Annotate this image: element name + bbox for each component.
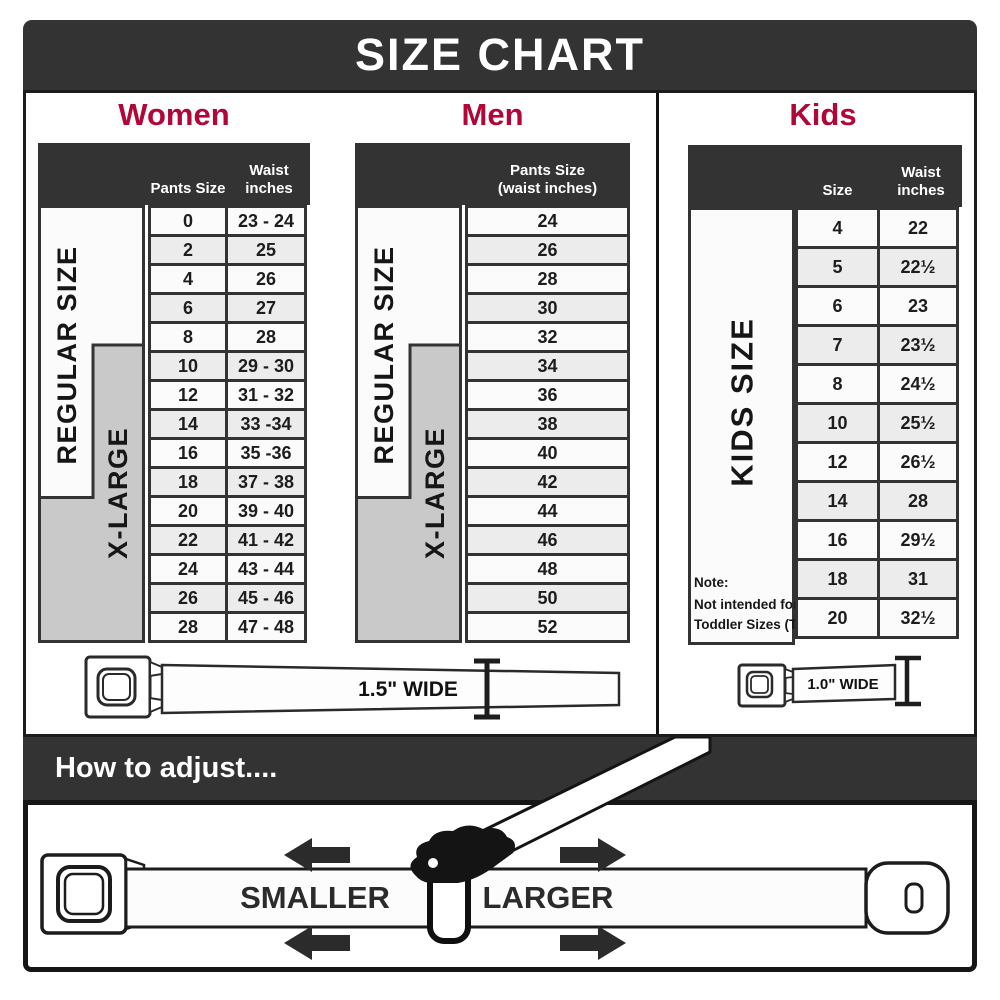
pants-size-cell: 44 [467, 497, 629, 526]
table-row: 20 39 - 40 [150, 497, 306, 526]
adult-belt-illustration: 1.5" WIDE [83, 650, 633, 725]
table-row: 24 43 - 44 [150, 555, 306, 584]
kids-table-header: Size Waist inches [688, 145, 962, 207]
arrow-left-icon [284, 838, 350, 872]
table-row: 4 26 [150, 265, 306, 294]
women-regular-size-label: REGULAR SIZE [52, 245, 82, 464]
seatbelt-buckle-icon [739, 665, 793, 706]
kids-fit-range-label: KIDS SIZE Note: Not intended for Toddler… [688, 207, 795, 645]
table-row: 18 31 [797, 560, 958, 599]
waist-cell: 45 - 46 [227, 584, 306, 613]
women-fit-range-labels: REGULAR SIZE X-LARGE [38, 205, 148, 643]
kid-size-cell: 14 [797, 482, 879, 521]
kid-size-cell: 16 [797, 521, 879, 560]
waist-cell: 25 [227, 236, 306, 265]
table-row: 18 37 - 38 [150, 468, 306, 497]
kids-size-label: KIDS SIZE [725, 317, 760, 487]
kids-size-table: Size Waist inches KIDS SIZE Note: Not in… [688, 145, 962, 645]
table-row: 10 29 - 30 [150, 352, 306, 381]
kid-size-cell: 8 [797, 365, 879, 404]
table-row: 16 29½ [797, 521, 958, 560]
men-col-pants-size: Pants Size (waist inches) [465, 162, 630, 205]
waist-cell: 31 - 32 [227, 381, 306, 410]
pants-size-cell: 26 [150, 584, 227, 613]
waist-cell: 26½ [879, 443, 958, 482]
waist-cell: 29½ [879, 521, 958, 560]
waist-cell: 26 [227, 265, 306, 294]
waist-cell: 35 -36 [227, 439, 306, 468]
table-row: 0 23 - 24 [150, 207, 306, 236]
kids-col-waist: Waist inches [880, 164, 962, 207]
size-tables-panel: Women Men Kids Pants Size Waist inches R… [23, 90, 977, 737]
adjust-illustration-panel: SMALLER LARGER [23, 800, 977, 972]
waist-cell: 32½ [879, 599, 958, 638]
waist-cell: 23 [879, 287, 958, 326]
pants-size-cell: 30 [467, 294, 629, 323]
pants-size-cell: 8 [150, 323, 227, 352]
waist-cell: 28 [879, 482, 958, 521]
kid-size-cell: 7 [797, 326, 879, 365]
waist-cell: 25½ [879, 404, 958, 443]
table-row: 28 47 - 48 [150, 613, 306, 642]
kid-size-cell: 12 [797, 443, 879, 482]
pants-size-cell: 28 [467, 265, 629, 294]
waist-cell: 27 [227, 294, 306, 323]
pants-size-cell: 36 [467, 381, 629, 410]
pants-size-cell: 48 [467, 555, 629, 584]
table-row: 52 [467, 613, 629, 642]
table-row: 46 [467, 526, 629, 555]
waist-cell: 23½ [879, 326, 958, 365]
seatbelt-buckle-icon [86, 657, 162, 717]
women-size-table: Pants Size Waist inches REGULAR SIZE X-L… [38, 143, 310, 643]
men-regular-size-label: REGULAR SIZE [369, 245, 399, 464]
pants-size-cell: 18 [150, 468, 227, 497]
pants-size-cell: 6 [150, 294, 227, 323]
pants-size-cell: 0 [150, 207, 227, 236]
women-xlarge-label: X-LARGE [103, 427, 133, 559]
women-table-header: Pants Size Waist inches [38, 143, 310, 205]
waist-cell: 47 - 48 [227, 613, 306, 642]
waist-cell: 28 [227, 323, 306, 352]
belt-adjuster-slider [430, 857, 468, 941]
kid-size-cell: 20 [797, 599, 879, 638]
waist-cell: 24½ [879, 365, 958, 404]
pants-size-cell: 22 [150, 526, 227, 555]
table-row: 6 23 [797, 287, 958, 326]
width-measure-icon [895, 658, 921, 704]
table-row: 14 33 -34 [150, 410, 306, 439]
table-row: 42 [467, 468, 629, 497]
table-row: 48 [467, 555, 629, 584]
section-divider [656, 93, 659, 734]
kid-size-cell: 18 [797, 560, 879, 599]
table-row: 36 [467, 381, 629, 410]
adult-belt-width-label: 1.5" WIDE [358, 678, 458, 701]
kids-note-line3: Toddler Sizes (T) [694, 617, 795, 632]
adjust-belt-illustration: SMALLER LARGER [28, 805, 972, 967]
women-col-waist: Waist inches [228, 162, 310, 205]
kid-size-cell: 5 [797, 248, 879, 287]
men-xlarge-label: X-LARGE [420, 427, 450, 559]
kids-col-size: Size [795, 182, 880, 207]
waist-cell: 33 -34 [227, 410, 306, 439]
waist-cell: 41 - 42 [227, 526, 306, 555]
pants-size-cell: 50 [467, 584, 629, 613]
table-row: 38 [467, 410, 629, 439]
waist-cell: 31 [879, 560, 958, 599]
kids-size-rows: 4 22 5 22½ 6 23 [795, 207, 959, 639]
kids-heading: Kids [673, 97, 973, 133]
table-row: 22 41 - 42 [150, 526, 306, 555]
pants-size-cell: 24 [467, 207, 629, 236]
adjust-heading: How to adjust.... [55, 737, 277, 800]
belt-tip [866, 863, 948, 933]
men-table-header: Pants Size (waist inches) [355, 143, 630, 205]
table-row: 34 [467, 352, 629, 381]
table-row: 14 28 [797, 482, 958, 521]
table-row: 6 27 [150, 294, 306, 323]
men-heading: Men [355, 97, 630, 133]
table-row: 16 35 -36 [150, 439, 306, 468]
pants-size-cell: 42 [467, 468, 629, 497]
kids-belt-width-label: 1.0" WIDE [807, 676, 878, 693]
pants-size-cell: 14 [150, 410, 227, 439]
pants-size-cell: 24 [150, 555, 227, 584]
waist-cell: 23 - 24 [227, 207, 306, 236]
women-heading: Women [38, 97, 310, 133]
table-row: 44 [467, 497, 629, 526]
arrow-right-icon [560, 926, 626, 960]
page-title: SIZE CHART [355, 29, 645, 81]
table-row: 8 28 [150, 323, 306, 352]
men-size-rows: 24 26 28 30 [465, 205, 630, 643]
kid-size-cell: 4 [797, 209, 879, 248]
table-row: 30 [467, 294, 629, 323]
table-row: 7 23½ [797, 326, 958, 365]
title-banner: SIZE CHART [23, 20, 977, 90]
table-row: 12 31 - 32 [150, 381, 306, 410]
waist-cell: 22½ [879, 248, 958, 287]
kid-size-cell: 6 [797, 287, 879, 326]
waist-cell: 39 - 40 [227, 497, 306, 526]
arrow-left-icon [284, 926, 350, 960]
smaller-label: SMALLER [240, 880, 390, 915]
men-size-table: Pants Size (waist inches) REGULAR SIZE X… [355, 143, 630, 643]
pants-size-cell: 26 [467, 236, 629, 265]
waist-cell: 22 [879, 209, 958, 248]
larger-label: LARGER [483, 880, 614, 915]
pants-size-cell: 4 [150, 265, 227, 294]
table-row: 20 32½ [797, 599, 958, 638]
table-row: 8 24½ [797, 365, 958, 404]
pants-size-cell: 38 [467, 410, 629, 439]
pants-size-cell: 52 [467, 613, 629, 642]
table-row: 26 45 - 46 [150, 584, 306, 613]
adjust-heading-band: How to adjust.... [23, 737, 977, 800]
women-size-rows: 0 23 - 24 2 25 4 26 [148, 205, 307, 643]
kids-note-line1: Note: [694, 575, 729, 590]
pants-size-cell: 34 [467, 352, 629, 381]
kids-note-line2: Not intended for [694, 597, 795, 612]
table-row: 26 [467, 236, 629, 265]
table-row: 32 [467, 323, 629, 352]
pants-size-cell: 46 [467, 526, 629, 555]
pants-size-cell: 28 [150, 613, 227, 642]
table-row: 50 [467, 584, 629, 613]
pants-size-cell: 10 [150, 352, 227, 381]
table-row: 5 22½ [797, 248, 958, 287]
kid-size-cell: 10 [797, 404, 879, 443]
pants-size-cell: 20 [150, 497, 227, 526]
waist-cell: 29 - 30 [227, 352, 306, 381]
women-col-pants-size: Pants Size [148, 180, 228, 205]
arrow-right-icon [560, 838, 626, 872]
table-row: 24 [467, 207, 629, 236]
table-row: 40 [467, 439, 629, 468]
pants-size-cell: 2 [150, 236, 227, 265]
pants-size-cell: 32 [467, 323, 629, 352]
kids-belt-illustration: 1.0" WIDE [735, 652, 930, 710]
pants-size-cell: 12 [150, 381, 227, 410]
table-row: 28 [467, 265, 629, 294]
men-fit-range-labels: REGULAR SIZE X-LARGE [355, 205, 465, 643]
pants-size-cell: 40 [467, 439, 629, 468]
waist-cell: 43 - 44 [227, 555, 306, 584]
pants-size-cell: 16 [150, 439, 227, 468]
table-row: 12 26½ [797, 443, 958, 482]
table-row: 10 25½ [797, 404, 958, 443]
waist-cell: 37 - 38 [227, 468, 306, 497]
table-row: 2 25 [150, 236, 306, 265]
table-row: 4 22 [797, 209, 958, 248]
size-chart-sheet: SIZE CHART Women Men Kids Pants Size Wai… [0, 0, 1000, 1000]
